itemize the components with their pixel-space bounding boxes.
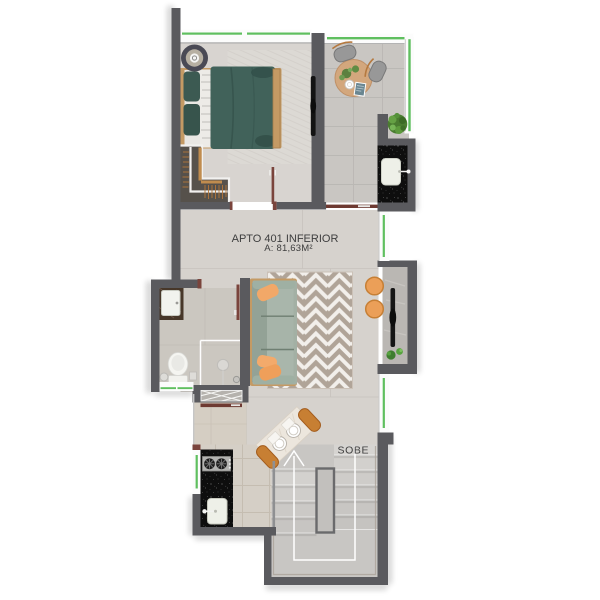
svg-text:SOBE: SOBE [338, 445, 370, 457]
svg-text:A: 81,63M²: A: 81,63M² [264, 243, 312, 254]
